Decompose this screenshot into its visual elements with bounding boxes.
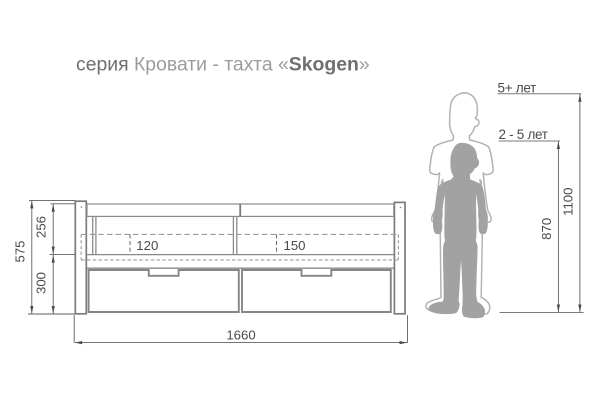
svg-text:150: 150 (284, 238, 306, 253)
svg-text:870: 870 (539, 218, 554, 240)
svg-text:2 - 5 лет: 2 - 5 лет (499, 127, 548, 142)
svg-text:256: 256 (34, 216, 49, 238)
svg-text:120: 120 (136, 238, 158, 253)
svg-text:серия Кровати - тахта «Skogen»: серия Кровати - тахта «Skogen» (76, 54, 370, 76)
svg-text:300: 300 (34, 272, 49, 294)
svg-text:1100: 1100 (561, 188, 576, 216)
svg-text:575: 575 (13, 240, 28, 262)
svg-text:1660: 1660 (226, 328, 255, 343)
svg-text:5+ лет: 5+ лет (498, 80, 537, 95)
